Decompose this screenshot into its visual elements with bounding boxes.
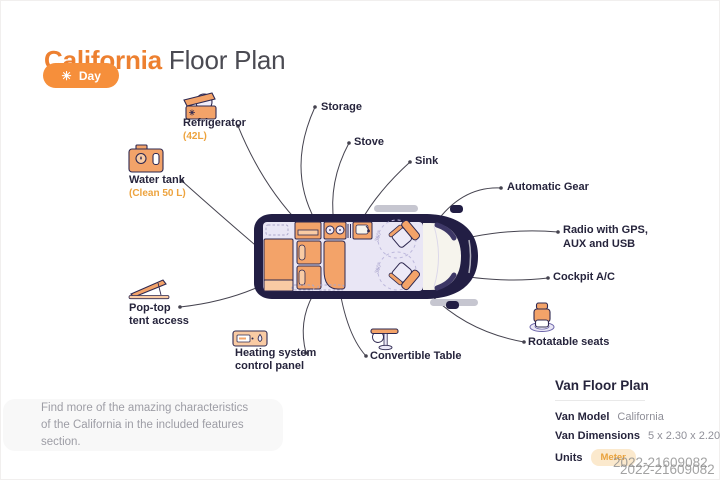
van-step-top bbox=[374, 205, 418, 212]
details-heading: Van Floor Plan bbox=[555, 378, 715, 393]
detail-row-dimensions: Van Dimensions 5 x 2.30 x 2.20m bbox=[555, 430, 715, 442]
rotatable-seat-icon bbox=[530, 303, 554, 332]
detail-row-model: Van Model California bbox=[555, 411, 715, 423]
callout-pop-top: Pop-top tent access bbox=[129, 302, 189, 327]
callout-convertible-table: Convertible Table bbox=[370, 350, 461, 363]
bed-foot bbox=[264, 280, 293, 291]
refrigerator-icon bbox=[184, 93, 216, 119]
pop-top-icon bbox=[129, 280, 169, 299]
refrigerator-capacity: (42L) bbox=[183, 131, 246, 144]
van-mirror-top bbox=[450, 205, 463, 213]
callout-automatic-gear: Automatic Gear bbox=[507, 181, 589, 194]
fridge-drawer bbox=[298, 230, 318, 235]
bench-cushion bbox=[299, 270, 305, 285]
van-mirror-bottom bbox=[446, 301, 459, 309]
callout-cockpit-ac: Cockpit A/C bbox=[553, 271, 615, 284]
water-tank-icon bbox=[129, 145, 163, 172]
callout-sink: Sink bbox=[415, 155, 438, 168]
convertible-table bbox=[324, 241, 345, 289]
callout-stove: Stove bbox=[354, 136, 384, 149]
burner-cap bbox=[339, 229, 341, 231]
details-divider bbox=[555, 400, 645, 401]
features-note: Find more of the amazing characteristics… bbox=[3, 399, 283, 451]
callout-refrigerator: Refrigerator (42L) bbox=[183, 117, 246, 143]
heating-panel-icon bbox=[233, 331, 267, 346]
features-note-line1: Find more of the amazing characteristics bbox=[41, 400, 283, 417]
bench-cushion bbox=[299, 245, 305, 260]
callout-water-tank: Water tank (Clean 50 L) bbox=[129, 174, 186, 200]
callout-rotatable-seats: Rotatable seats bbox=[528, 336, 609, 349]
water-tank-capacity: (Clean 50 L) bbox=[129, 188, 186, 201]
callout-storage: Storage bbox=[321, 101, 362, 114]
convertible-table-icon bbox=[371, 329, 398, 350]
van-top-view: 360° 360° bbox=[254, 205, 478, 309]
callout-heating: Heating system control panel bbox=[235, 347, 316, 372]
burner-cap bbox=[329, 229, 331, 231]
callout-radio: Radio with GPS, AUX and USB bbox=[563, 224, 648, 251]
sink-drain bbox=[367, 230, 370, 233]
watermark: 2022-21609082 bbox=[620, 462, 715, 477]
features-note-line2: of the California in the included featur… bbox=[41, 417, 283, 451]
